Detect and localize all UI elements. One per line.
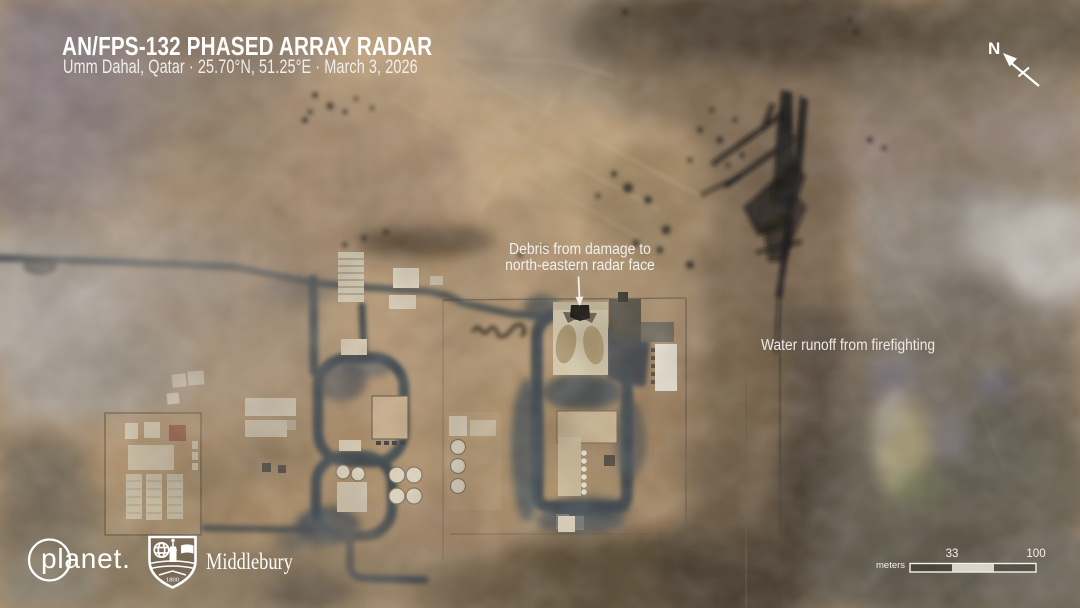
svg-text:1800: 1800 xyxy=(166,577,179,584)
